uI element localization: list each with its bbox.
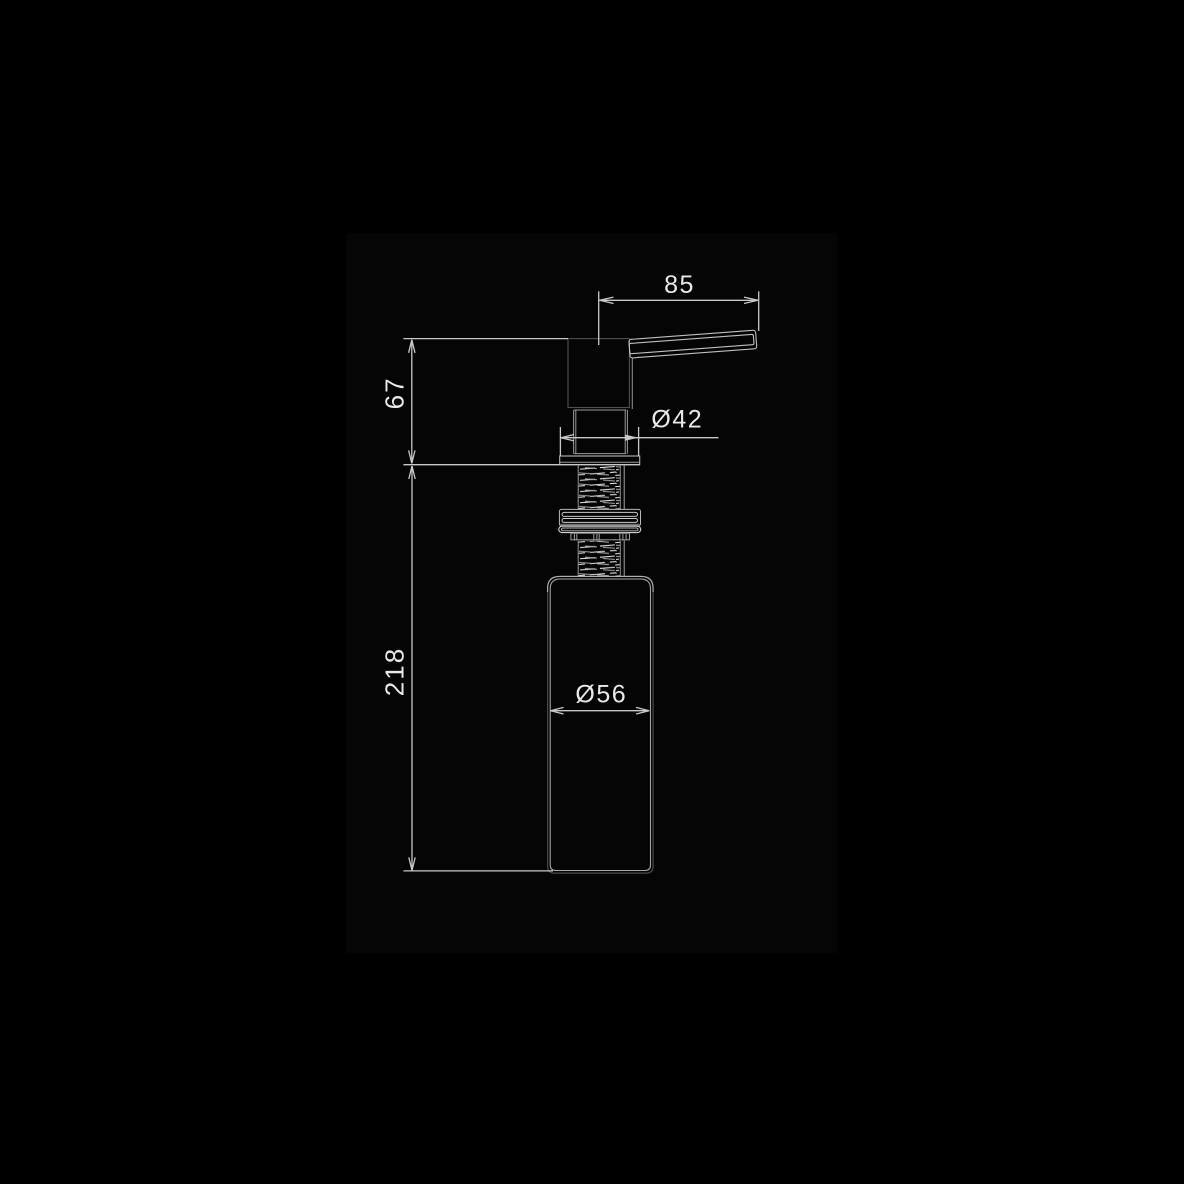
svg-text:218: 218 bbox=[379, 647, 409, 696]
svg-text:Ø42: Ø42 bbox=[651, 405, 703, 433]
svg-text:67: 67 bbox=[380, 376, 410, 409]
svg-text:Ø56: Ø56 bbox=[575, 681, 627, 709]
svg-text:85: 85 bbox=[664, 271, 695, 299]
